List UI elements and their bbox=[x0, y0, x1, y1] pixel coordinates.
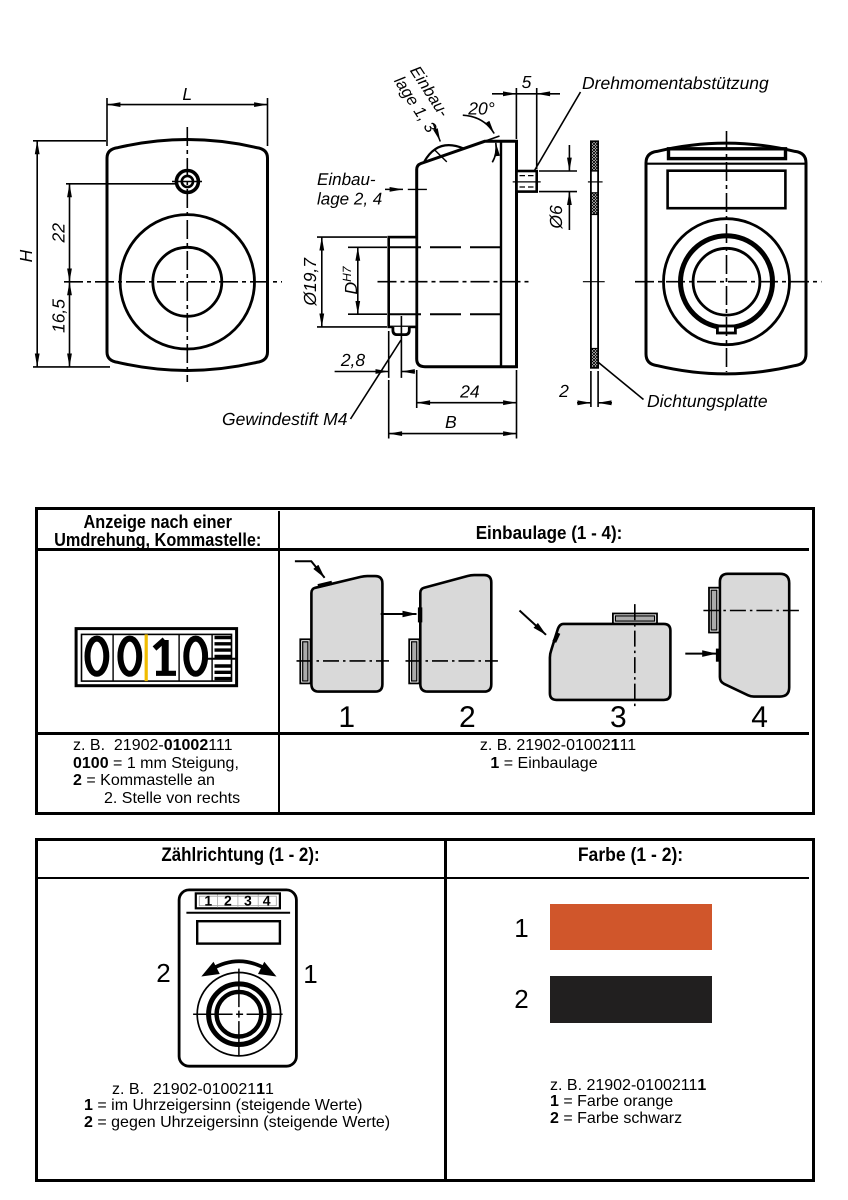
svg-text:2: 2 bbox=[224, 893, 232, 909]
svg-text:Ø19,7: Ø19,7 bbox=[300, 257, 320, 307]
svg-text:L: L bbox=[182, 84, 192, 104]
svg-text:16,5: 16,5 bbox=[49, 299, 69, 333]
svg-text:3: 3 bbox=[610, 701, 627, 734]
svg-text:2: 2 bbox=[459, 701, 476, 734]
svg-text:5: 5 bbox=[522, 72, 532, 92]
svg-text:3: 3 bbox=[244, 893, 252, 909]
svg-text:Ø6: Ø6 bbox=[546, 205, 566, 230]
svg-text:1: 1 bbox=[204, 893, 212, 909]
svg-text:B: B bbox=[445, 412, 457, 432]
svg-text:lage 2, 4: lage 2, 4 bbox=[317, 190, 382, 209]
svg-text:24: 24 bbox=[459, 382, 480, 402]
svg-text:20°: 20° bbox=[467, 99, 494, 119]
svg-text:H: H bbox=[16, 249, 36, 262]
svg-text:22: 22 bbox=[49, 223, 69, 244]
svg-text:2,8: 2,8 bbox=[340, 350, 366, 370]
svg-text:2: 2 bbox=[558, 381, 569, 401]
svg-text:Drehmomentabstützung: Drehmomentabstützung bbox=[582, 73, 769, 93]
svg-text:1: 1 bbox=[338, 701, 355, 734]
svg-text:Dichtungsplatte: Dichtungsplatte bbox=[647, 391, 768, 411]
svg-text:Einbau-: Einbau- bbox=[317, 170, 376, 189]
svg-text:4: 4 bbox=[751, 701, 768, 734]
svg-text:Gewindestift M4: Gewindestift M4 bbox=[222, 409, 348, 429]
svg-text:4: 4 bbox=[263, 893, 271, 909]
